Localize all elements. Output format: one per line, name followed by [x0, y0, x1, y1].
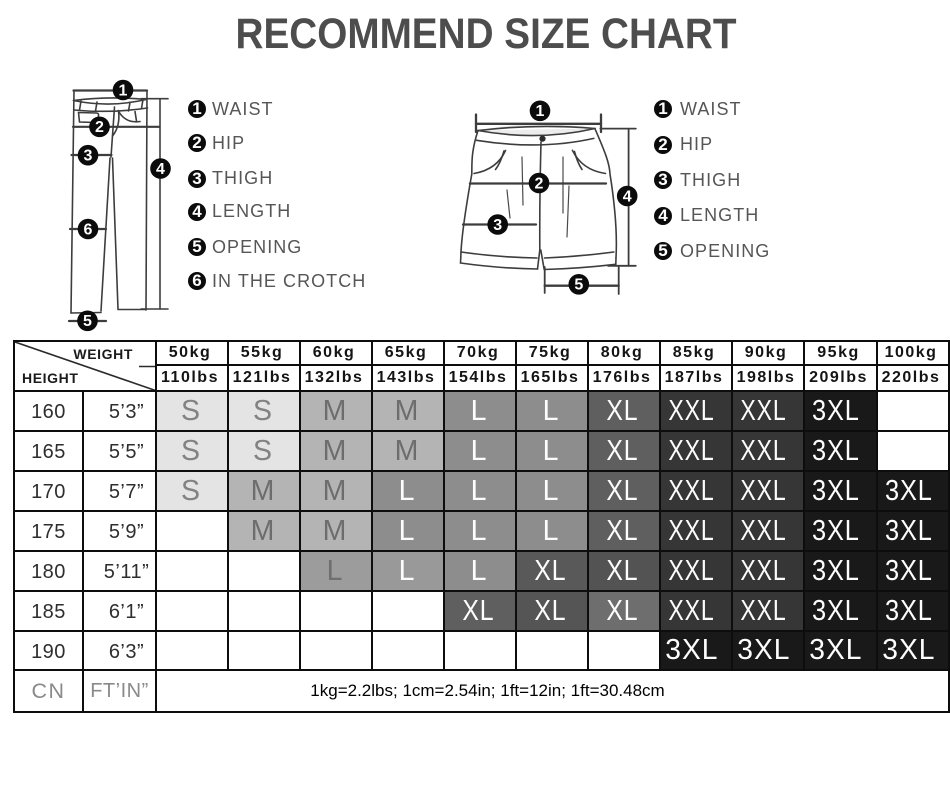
svg-text:1: 1 [119, 82, 128, 99]
svg-text:2: 2 [535, 175, 544, 192]
svg-text:5: 5 [83, 313, 92, 330]
svg-text:4: 4 [623, 188, 632, 205]
svg-text:1: 1 [536, 103, 545, 120]
svg-text:5: 5 [574, 277, 583, 294]
svg-text:4: 4 [156, 161, 165, 178]
svg-text:6: 6 [84, 221, 93, 238]
svg-text:3: 3 [84, 148, 93, 165]
svg-text:2: 2 [95, 119, 104, 136]
svg-text:3: 3 [493, 217, 502, 234]
